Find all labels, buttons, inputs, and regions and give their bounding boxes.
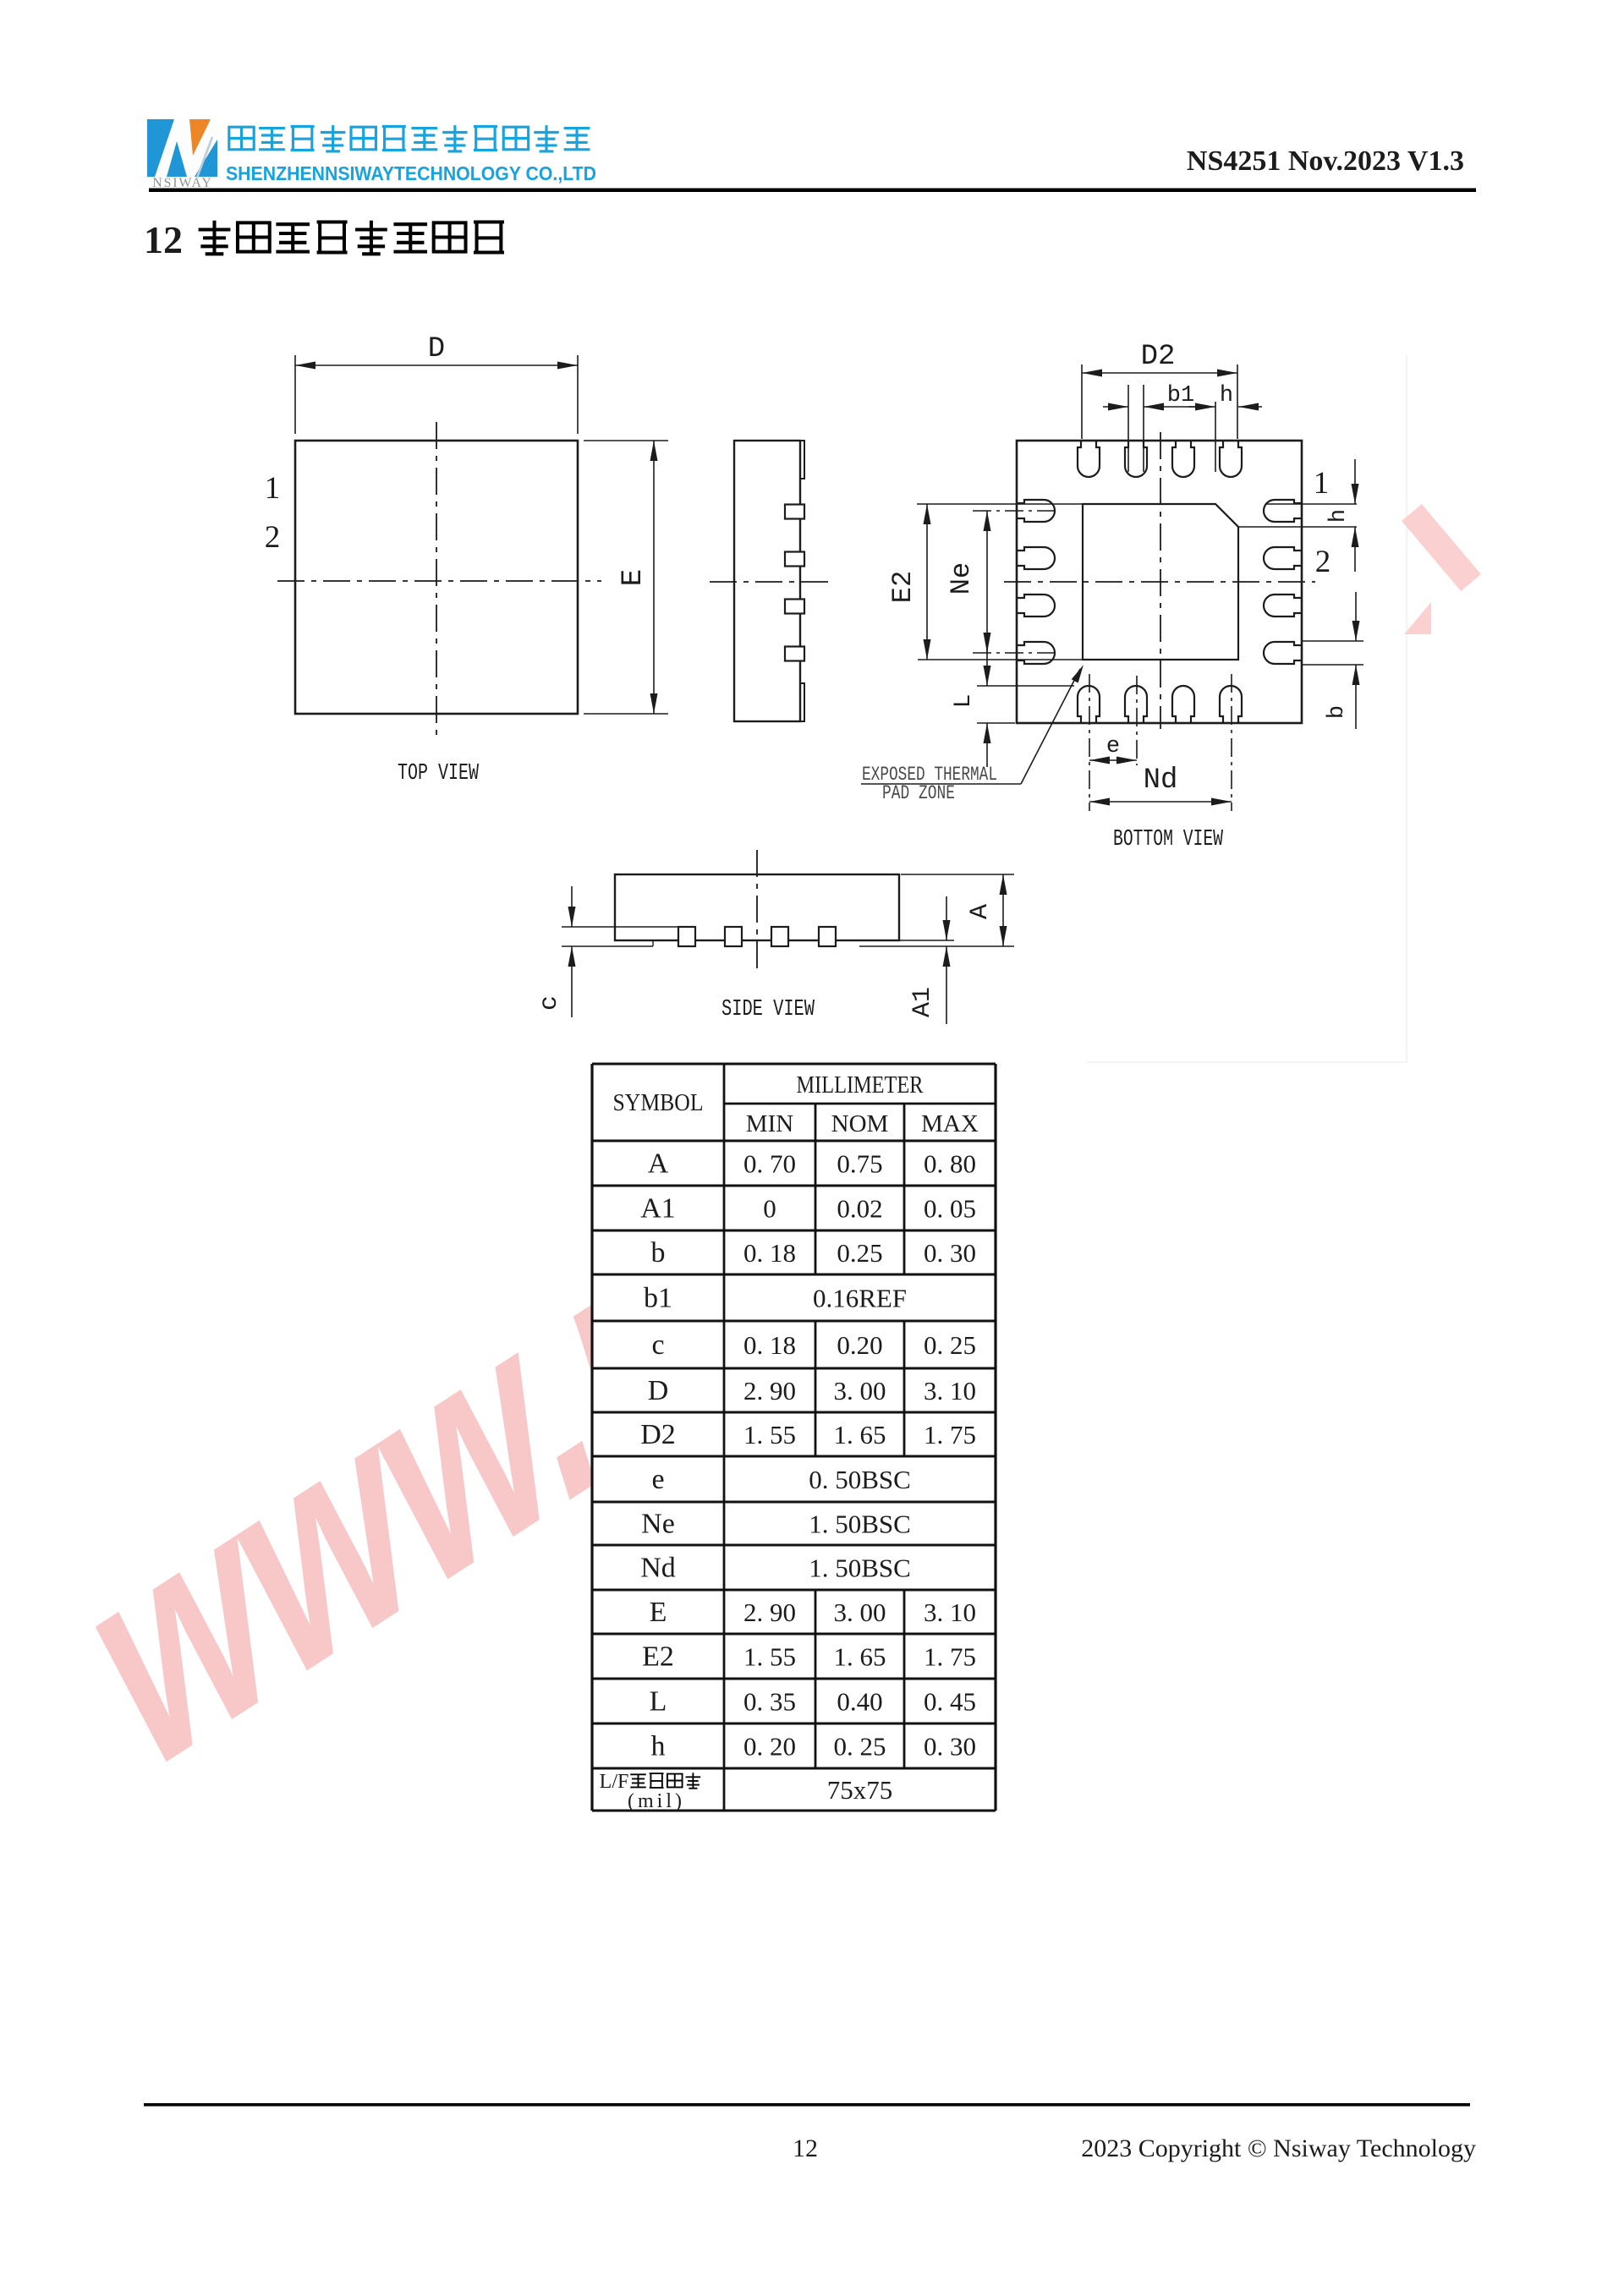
svg-text:h: h <box>1326 509 1352 523</box>
svg-text:b: b <box>1325 705 1350 719</box>
svg-text:0. 30: 0. 30 <box>924 1238 976 1268</box>
svg-text:b1: b1 <box>644 1283 672 1314</box>
svg-text:A1: A1 <box>640 1193 676 1225</box>
svg-text:1. 50BSC: 1. 50BSC <box>809 1510 911 1539</box>
svg-text:1. 65: 1. 65 <box>834 1642 886 1672</box>
svg-text:0.16REF: 0.16REF <box>813 1284 907 1313</box>
svg-text:1. 55: 1. 55 <box>743 1420 796 1449</box>
svg-text:NSIWAY: NSIWAY <box>152 176 213 190</box>
svg-text:0. 45: 0. 45 <box>924 1687 976 1717</box>
svg-text:Ne: Ne <box>946 562 977 595</box>
svg-text:D: D <box>648 1375 669 1406</box>
svg-text:0. 20: 0. 20 <box>743 1732 796 1762</box>
svg-text:h: h <box>1220 383 1233 408</box>
svg-text:0.75: 0.75 <box>837 1149 882 1179</box>
svg-text:2. 90: 2. 90 <box>743 1597 796 1627</box>
svg-text:b1: b1 <box>1167 383 1194 408</box>
svg-text:(mil): (mil) <box>628 1790 685 1812</box>
svg-text:0.02: 0.02 <box>837 1194 882 1224</box>
svg-text:c: c <box>535 995 564 1011</box>
svg-text:h: h <box>651 1731 666 1762</box>
svg-text:E2: E2 <box>887 571 919 603</box>
svg-text:PAD ZONE: PAD ZONE <box>882 782 955 804</box>
svg-text:MAX: MAX <box>921 1110 979 1137</box>
svg-text:3. 00: 3. 00 <box>834 1597 886 1627</box>
svg-text:0. 05: 0. 05 <box>924 1194 976 1224</box>
svg-text:0: 0 <box>763 1194 776 1224</box>
svg-text:L: L <box>650 1686 667 1718</box>
svg-text:SHENZHENNSIWAYTECHNOLOGY CO.,L: SHENZHENNSIWAYTECHNOLOGY CO.,LTD <box>226 162 596 184</box>
svg-text:SYMBOL: SYMBOL <box>613 1089 704 1116</box>
svg-text:1. 75: 1. 75 <box>924 1420 976 1449</box>
svg-text:0. 50BSC: 0. 50BSC <box>809 1465 911 1494</box>
svg-text:2: 2 <box>1315 545 1331 579</box>
svg-text:1. 75: 1. 75 <box>924 1642 976 1672</box>
svg-text:0. 25: 0. 25 <box>924 1330 976 1360</box>
svg-text:MIN: MIN <box>746 1110 793 1137</box>
svg-text:0. 35: 0. 35 <box>743 1687 796 1717</box>
svg-text:1: 1 <box>265 471 281 506</box>
svg-text:0. 18: 0. 18 <box>743 1238 796 1268</box>
svg-text:e: e <box>651 1464 664 1495</box>
svg-text:12: 12 <box>793 2134 818 2162</box>
svg-text:Nd: Nd <box>640 1553 676 1584</box>
svg-text:1. 65: 1. 65 <box>834 1420 886 1449</box>
svg-text:NS4251 Nov.2023 V1.3: NS4251 Nov.2023 V1.3 <box>1187 145 1464 177</box>
svg-text:2: 2 <box>265 520 281 555</box>
svg-text:0.25: 0.25 <box>837 1238 882 1268</box>
svg-text:Nd: Nd <box>1144 764 1178 797</box>
svg-text:D: D <box>428 333 445 365</box>
svg-text:0. 80: 0. 80 <box>924 1149 976 1179</box>
svg-text:75x75: 75x75 <box>827 1775 893 1805</box>
svg-text:12: 12 <box>144 218 183 261</box>
svg-text:SIDE VIEW: SIDE VIEW <box>721 997 815 1022</box>
svg-text:2023 Copyright © Nsiway Techno: 2023 Copyright © Nsiway Technology <box>1081 2134 1476 2162</box>
svg-text:A: A <box>966 904 995 919</box>
svg-text:3. 10: 3. 10 <box>924 1376 976 1406</box>
svg-text:1: 1 <box>1314 466 1330 501</box>
svg-text:Ne: Ne <box>641 1509 675 1540</box>
svg-text:TOP VIEW: TOP VIEW <box>398 761 480 786</box>
svg-text:e: e <box>1106 734 1120 759</box>
svg-text:MILLIMETER: MILLIMETER <box>797 1072 924 1099</box>
svg-text:0. 30: 0. 30 <box>924 1732 976 1762</box>
svg-text:0.40: 0.40 <box>837 1687 882 1717</box>
svg-text:0. 70: 0. 70 <box>743 1149 796 1179</box>
svg-text:A1: A1 <box>908 987 937 1017</box>
svg-text:E: E <box>650 1597 667 1628</box>
svg-text:b: b <box>651 1237 666 1269</box>
svg-text:A: A <box>648 1148 669 1180</box>
svg-text:NOM: NOM <box>831 1110 889 1137</box>
svg-text:1. 50BSC: 1. 50BSC <box>809 1553 911 1583</box>
svg-text:L: L <box>951 694 977 709</box>
svg-text:2. 90: 2. 90 <box>743 1376 796 1406</box>
svg-text:0.20: 0.20 <box>837 1330 882 1360</box>
svg-text:1. 55: 1. 55 <box>743 1642 796 1672</box>
svg-text:L/F: L/F <box>600 1771 629 1793</box>
svg-text:0. 18: 0. 18 <box>743 1330 796 1360</box>
svg-text:BOTTOM VIEW: BOTTOM VIEW <box>1113 827 1224 852</box>
svg-text:c: c <box>651 1329 664 1361</box>
svg-text:3. 10: 3. 10 <box>924 1597 976 1627</box>
svg-text:D2: D2 <box>1141 341 1176 373</box>
svg-text:D2: D2 <box>640 1419 676 1450</box>
svg-text:E2: E2 <box>642 1641 674 1673</box>
svg-text:E: E <box>617 569 650 586</box>
svg-text:3. 00: 3. 00 <box>834 1376 886 1406</box>
svg-text:0. 25: 0. 25 <box>834 1732 886 1762</box>
